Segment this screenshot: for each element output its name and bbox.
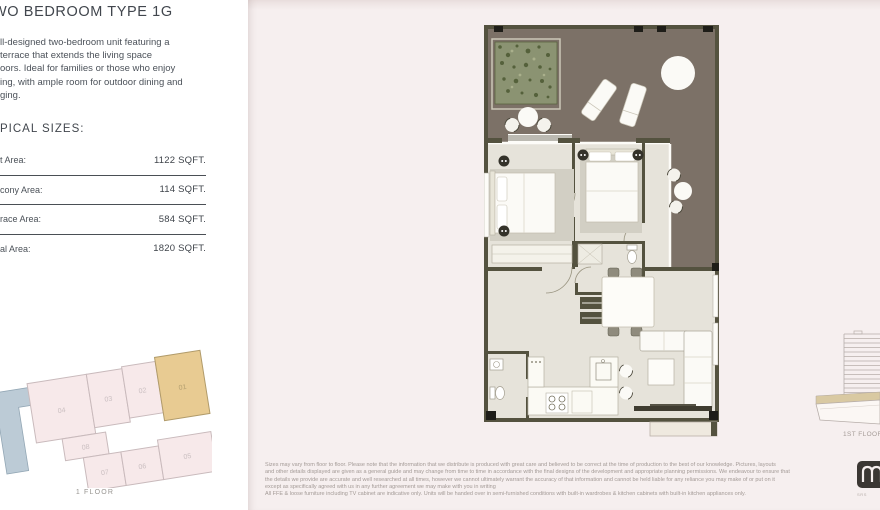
- size-value: 584 SQFT.: [159, 214, 206, 225]
- info-panel: WO BEDROOM TYPE 1G ll-designed two-bedro…: [0, 0, 248, 510]
- disclaimer-line: Sizes may vary from floor to floor. Plea…: [265, 462, 850, 469]
- keyplan-unit-04: 04: [27, 374, 96, 443]
- elevation-floor-label: 1ST FLOOR: [843, 431, 880, 438]
- page-title: WO BEDROOM TYPE 1G: [0, 4, 173, 20]
- disclaimer-line: and other details displayed are given as…: [265, 469, 850, 476]
- window: [484, 173, 489, 237]
- svg-text:08: 08: [81, 444, 90, 452]
- svg-text:05: 05: [183, 453, 192, 461]
- bedroom-1: [490, 169, 574, 263]
- size-value: 1122 SQFT.: [154, 155, 206, 166]
- planter-box: [492, 39, 560, 109]
- svg-text:04: 04: [57, 407, 66, 415]
- sizes-heading: PICAL SIZES:: [0, 123, 84, 135]
- bar-stool: [620, 387, 633, 400]
- keyplan-unit-07: 07: [83, 452, 126, 488]
- disclaimer-line: the details we provide are accurate and …: [265, 477, 850, 484]
- description-line: ging.: [0, 89, 225, 102]
- svg-text:01: 01: [178, 384, 187, 392]
- description-line: oors. Ideal for families or those who en…: [0, 62, 225, 75]
- balcony: [650, 422, 717, 436]
- tv-console: [634, 406, 712, 411]
- size-row-terrace-area: race Area: 584 SQFT.: [0, 205, 206, 235]
- size-label: al Area:: [0, 244, 31, 254]
- coffee-table: [648, 359, 674, 385]
- size-label: cony Area:: [0, 185, 43, 195]
- keyplan-unit-06: 06: [121, 446, 164, 486]
- unit-description: ll-designed two-bedroom unit featuring a…: [0, 36, 225, 102]
- size-value: 114 SQFT.: [159, 184, 206, 195]
- svg-text:07: 07: [101, 469, 110, 477]
- disclaimer-line: All FFE & loose furniture including TV c…: [265, 491, 850, 498]
- description-line: ll-designed two-bedroom unit featuring a: [0, 36, 225, 49]
- tower-floors: [844, 331, 880, 396]
- disclaimer-line: except as specifically agreed with us in…: [265, 484, 850, 491]
- size-row-unit-area: t Area: 1122 SQFT.: [0, 146, 206, 176]
- floorplan: [484, 25, 719, 445]
- podium: [816, 400, 880, 424]
- window: [713, 275, 718, 317]
- size-value: 1820 SQFT.: [153, 243, 206, 254]
- bar-stool: [620, 365, 633, 378]
- brand-logo: [857, 461, 880, 491]
- keyplan-diagram: 04 03 02 01 08 07: [0, 348, 212, 488]
- svg-text:06: 06: [138, 463, 147, 471]
- keyplan-unit-05: 05: [157, 432, 212, 480]
- brand-logo-caption: SRS: [857, 492, 867, 497]
- svg-text:02: 02: [138, 387, 147, 395]
- building-elevation: [806, 330, 880, 430]
- keyplan-caption: 1 FLOOR: [55, 489, 135, 496]
- bedroom-2: [580, 149, 642, 233]
- size-row-total-area: al Area: 1820 SQFT.: [0, 235, 206, 264]
- svg-text:03: 03: [104, 396, 113, 404]
- description-line: terrace that extends the living space: [0, 49, 225, 62]
- size-label: race Area:: [0, 214, 41, 224]
- window: [713, 323, 718, 365]
- round-daybed: [661, 56, 695, 90]
- description-line: ing, with ample room for outdoor dining …: [0, 76, 225, 89]
- sizes-table: t Area: 1122 SQFT. cony Area: 114 SQFT. …: [0, 146, 206, 263]
- size-row-balcony-area: cony Area: 114 SQFT.: [0, 176, 206, 206]
- keyplan-unit-01-highlighted: 01: [155, 350, 210, 420]
- disclaimer-text: Sizes may vary from floor to floor. Plea…: [265, 462, 850, 498]
- dining-set: [602, 268, 654, 336]
- size-label: t Area:: [0, 155, 26, 165]
